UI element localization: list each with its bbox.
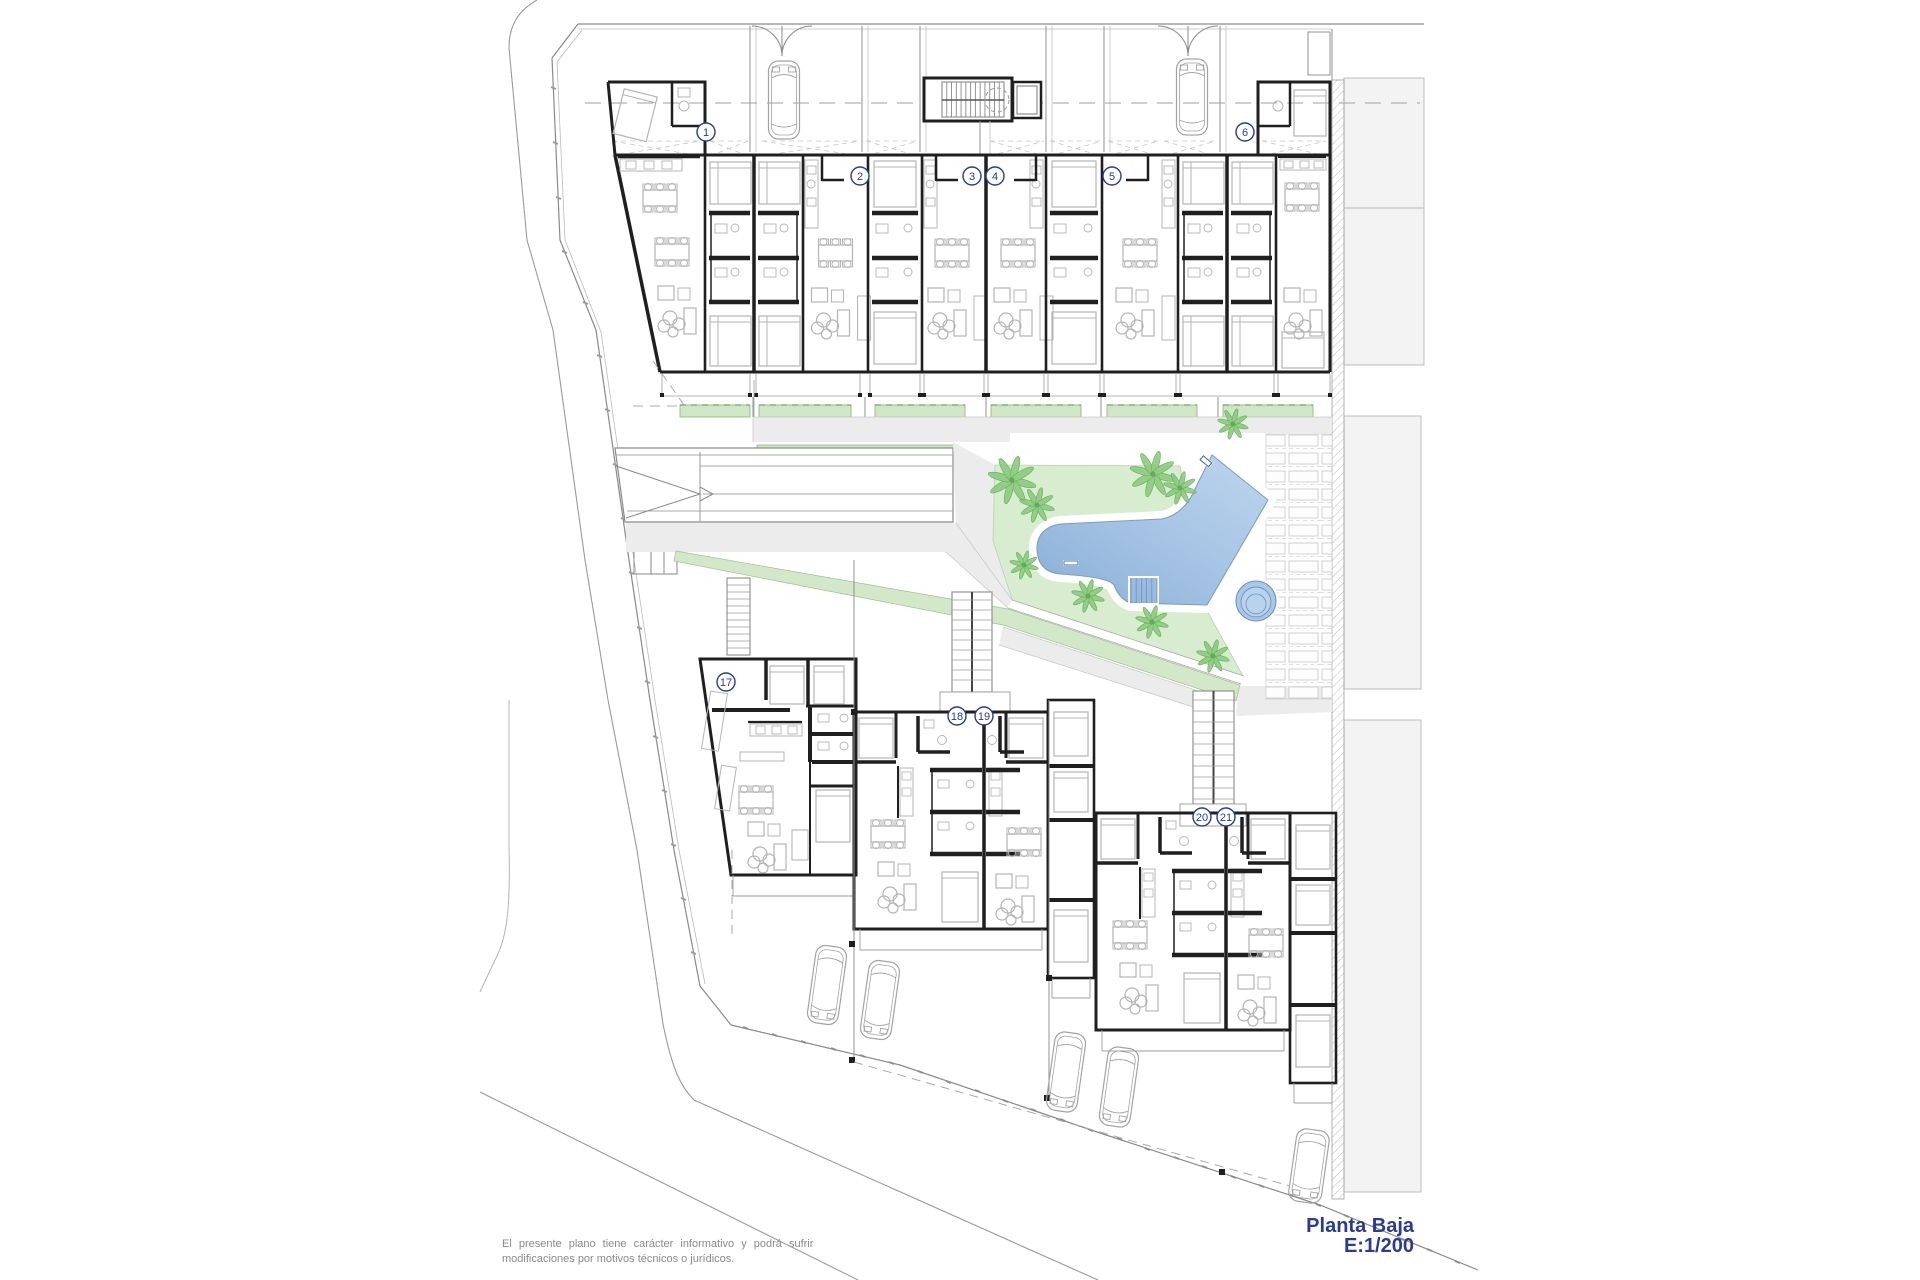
svg-text:2: 2 bbox=[857, 171, 863, 183]
svg-text:17: 17 bbox=[720, 677, 732, 689]
svg-text:1: 1 bbox=[703, 127, 709, 139]
svg-text:E:1/200: E:1/200 bbox=[1344, 1235, 1414, 1257]
svg-text:4: 4 bbox=[992, 171, 998, 183]
svg-text:19: 19 bbox=[978, 711, 990, 723]
svg-text:Planta Baja: Planta Baja bbox=[1306, 1215, 1415, 1237]
svg-text:6: 6 bbox=[1242, 127, 1248, 139]
svg-text:3: 3 bbox=[969, 171, 975, 183]
svg-text:5: 5 bbox=[1109, 171, 1115, 183]
svg-text:El presente plano tiene ca: El presente plano tiene carácter informa… bbox=[502, 1238, 814, 1250]
svg-text:21: 21 bbox=[1220, 812, 1232, 824]
svg-text:20: 20 bbox=[1196, 812, 1208, 824]
svg-text:modificaciones por motivos téc: modificaciones por motivos técnicos o ju… bbox=[502, 1253, 734, 1265]
svg-text:18: 18 bbox=[951, 711, 963, 723]
